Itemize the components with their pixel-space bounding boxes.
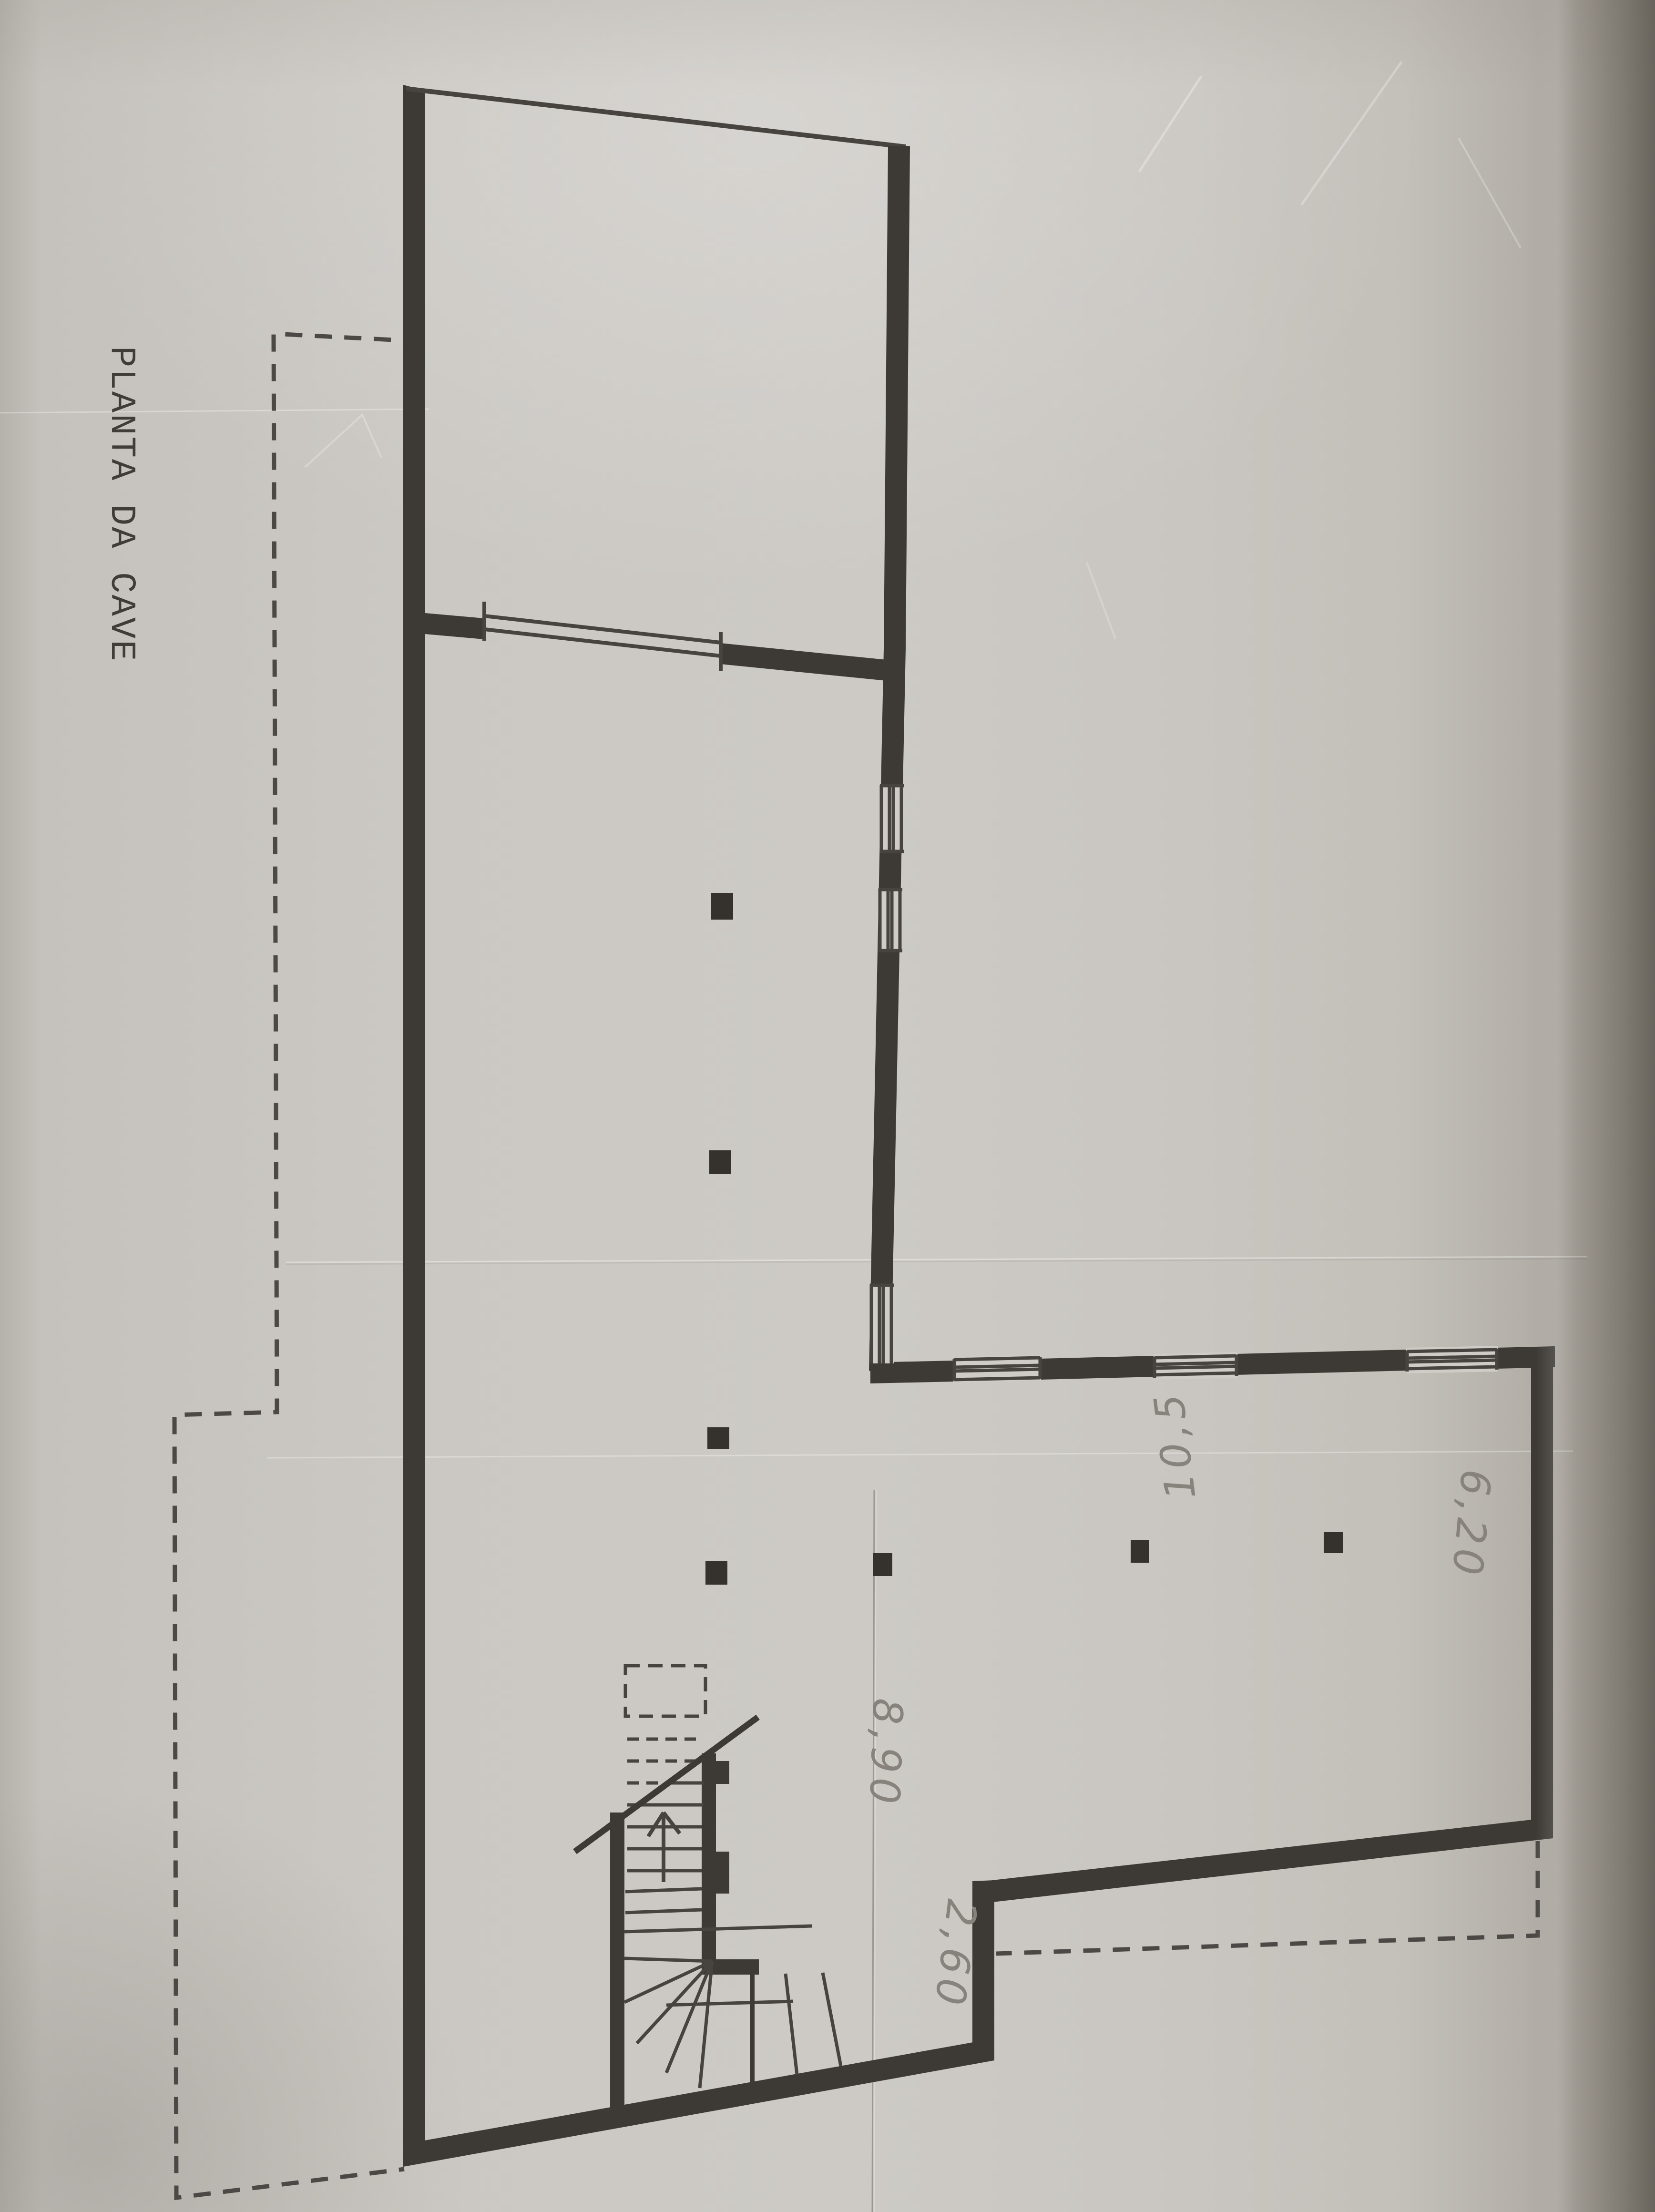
scanned-page: PLANTA DA CAVE 8,90 2,60 6,20 10,5 bbox=[0, 0, 1655, 2212]
wing-top-wall-pier bbox=[1040, 1356, 1154, 1380]
column bbox=[1131, 1540, 1149, 1563]
column bbox=[711, 893, 733, 920]
dimension-label-8-90: 8,90 bbox=[860, 1698, 911, 1810]
window bbox=[880, 785, 904, 852]
page-edge-shadow bbox=[1536, 0, 1655, 2212]
wing-top-wall-pier bbox=[1236, 1350, 1407, 1375]
column bbox=[1324, 1532, 1343, 1553]
exterior-walls bbox=[403, 85, 1555, 2167]
wall-top-thin bbox=[406, 89, 906, 147]
columns bbox=[705, 893, 1343, 1585]
wall-interior-left-stub bbox=[425, 613, 484, 639]
column bbox=[709, 1150, 731, 1174]
wall-interior-right bbox=[721, 643, 896, 682]
door-leaf-line bbox=[484, 629, 721, 656]
property-boundary-dashed bbox=[174, 334, 1538, 2198]
column bbox=[705, 1561, 727, 1585]
stair-dashed-treads bbox=[627, 1739, 704, 1805]
wing-top-wall-pier bbox=[870, 1361, 954, 1383]
door-leaf-line bbox=[484, 616, 721, 643]
plan-title: PLANTA DA CAVE bbox=[101, 346, 141, 663]
window bbox=[953, 1355, 1041, 1382]
window bbox=[870, 1284, 894, 1363]
stair-dashed-landing bbox=[625, 1666, 705, 1716]
dimension-label-6-20: 6,20 bbox=[1442, 1467, 1500, 1581]
column bbox=[707, 1427, 729, 1449]
stair-wall-jamb bbox=[716, 1852, 729, 1894]
wing-wall-bottom bbox=[992, 1817, 1553, 1902]
wall-left bbox=[403, 85, 425, 2166]
boundary-left bbox=[174, 334, 420, 2198]
section-break-line bbox=[575, 1717, 758, 1852]
window bbox=[879, 889, 902, 952]
window bbox=[1406, 1346, 1498, 1373]
stair-wall-left bbox=[610, 1813, 624, 2114]
column bbox=[873, 1553, 892, 1576]
windows bbox=[870, 785, 1498, 1382]
paper-creases bbox=[0, 62, 1587, 2212]
floor-plan-svg bbox=[0, 0, 1655, 2212]
window bbox=[1154, 1352, 1237, 1380]
interior-glazed-door bbox=[484, 602, 721, 671]
stair-wall-right bbox=[702, 1753, 716, 1974]
stair-wall-jamb bbox=[716, 1761, 729, 1784]
winder-treads bbox=[624, 1958, 841, 2088]
wall-right bbox=[880, 146, 899, 1371]
wall-bottom bbox=[403, 2038, 994, 2167]
